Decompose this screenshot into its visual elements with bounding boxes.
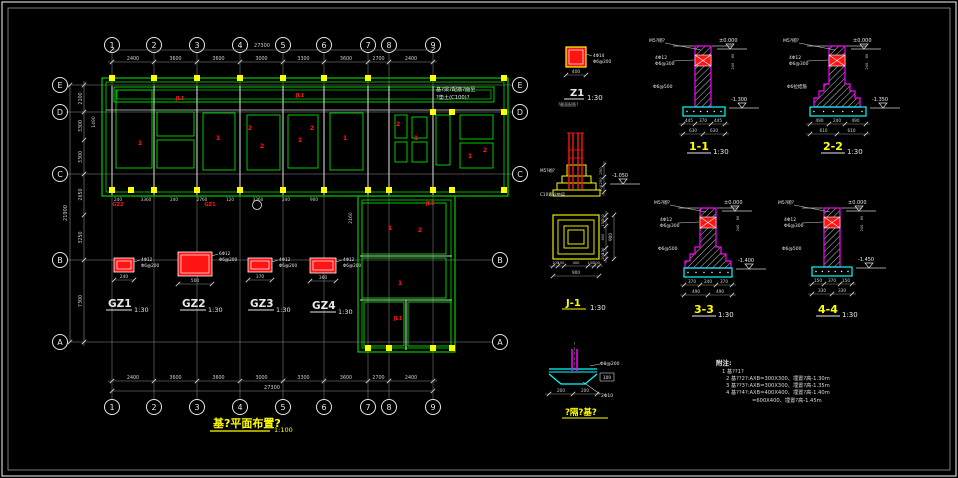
dim-text: 370 <box>688 279 696 284</box>
aggregate-dot <box>861 111 862 112</box>
dim-text: 3360 <box>141 197 152 202</box>
plan-note-line: ?垫土(C100)? <box>436 93 470 101</box>
j1-label: J-1 <box>565 298 581 309</box>
note-item: 4 基??4?:AXB=400X400、埋置?高-1.40m <box>726 388 830 396</box>
trench-detail: Φ8@2001002Φ10200200?隔?基? <box>545 342 620 418</box>
dim-text: 150 <box>601 219 605 227</box>
room-footing-outline <box>364 302 404 346</box>
column-marker <box>280 187 286 193</box>
dim-text: 630 <box>689 128 697 133</box>
beam-section-mark: 1 <box>388 224 393 232</box>
level-triangle <box>731 206 739 211</box>
leader <box>272 260 278 262</box>
j1-scale: 1:30 <box>590 304 606 312</box>
column-marker <box>321 75 327 81</box>
plan-note-line: 基?梁?配筋?面至 <box>436 85 475 93</box>
gz-scale: 1:30 <box>338 308 353 316</box>
aggregate-dot <box>841 271 842 272</box>
beam-section-mark: 2 <box>396 120 401 128</box>
column-marker <box>109 75 115 81</box>
level-value: -1.400 <box>738 258 754 264</box>
plan-title-block: 基?平面布置?1:100 <box>210 416 293 434</box>
leader <box>134 260 140 262</box>
dim-text: 60 <box>731 54 735 58</box>
level-triangle <box>855 206 863 211</box>
beam-section-mark: JL1 <box>393 316 403 322</box>
section-scale: 1:30 <box>713 148 729 156</box>
column-marker <box>109 187 115 193</box>
beam-section-mark: 1 <box>138 139 143 147</box>
dim-text: 200 <box>581 388 589 393</box>
leader <box>678 222 699 223</box>
column-marker <box>237 75 243 81</box>
aggregate-dot <box>686 111 687 112</box>
level-value: ±0.000 <box>848 200 867 206</box>
dim-text: 445 <box>685 118 693 123</box>
note-item: 1 基??1? <box>722 367 744 375</box>
grid-bubble-label: 4 <box>237 403 242 412</box>
column-marker <box>194 187 200 193</box>
beam-section-mark: GZ2 <box>112 202 124 208</box>
section-3-3: ±0.000-1.400370240370490490602404Φ12Φ6@3… <box>654 199 766 319</box>
aggregate-dot <box>727 272 728 273</box>
dim-text: 150 <box>558 261 566 265</box>
grid-bubble-label: 6 <box>321 403 326 412</box>
dim-text: 370 <box>256 274 265 280</box>
rebar-note: 4Φ12 <box>655 55 667 61</box>
rebar-note: 4Φ12 <box>279 257 291 262</box>
column-marker <box>151 187 157 193</box>
j1-column-plan <box>568 230 584 244</box>
rebar-note: 4Φ12 <box>660 217 672 223</box>
j1-detail: M5?砌?C10素砼垫层250250100-1.0501001504001501… <box>540 133 640 312</box>
dim-text: 2760 <box>197 197 208 202</box>
gz-detail-GZ1: 2404Φ12Φ6@200GZ11:30 <box>106 257 159 314</box>
dim-text: 490 <box>692 289 700 294</box>
overall-width-bottom: 27300 <box>264 385 280 391</box>
dim-text: 370 <box>699 118 707 123</box>
grid-bubble-label: A <box>57 338 63 347</box>
column-marker <box>365 187 371 193</box>
leader <box>590 364 600 366</box>
stirrup-note: Φ6@300 <box>660 223 680 229</box>
grid-bubble-label: 2 <box>151 403 156 412</box>
beam-section-mark: 1 <box>414 134 419 142</box>
gz-scale: 1:30 <box>208 306 223 314</box>
aggregate-dot <box>700 111 701 112</box>
note-item: =600X400、埋置?高-1.45m <box>752 396 822 404</box>
dim-text: 400 <box>572 69 581 75</box>
dim-text: 3600 <box>212 56 224 62</box>
plan-title: 基?平面布置? <box>212 416 281 430</box>
dim-text: 3600 <box>212 375 224 381</box>
column-marker <box>430 109 436 115</box>
dim-text: 240 <box>120 274 129 280</box>
tie-note: Φ6@500 <box>658 246 678 252</box>
gz-column-section <box>248 258 272 272</box>
dim-text: 240 <box>170 197 178 202</box>
plan-dimensions: 2400360036003000330036002700240027300240… <box>63 43 437 393</box>
column-marker <box>194 75 200 81</box>
room-footing-outline <box>362 203 446 254</box>
dim-text: 630 <box>710 128 718 133</box>
dim-text: 490 <box>852 118 860 123</box>
level-value: ±0.000 <box>724 200 743 206</box>
level-triangle <box>860 44 868 49</box>
rebar-note: Φ8@200 <box>600 361 620 367</box>
rebar-note: 4Φ12 <box>789 55 801 61</box>
grid-bubble-label: D <box>517 108 523 117</box>
section-scale: 1:30 <box>847 148 863 156</box>
aggregate-dot <box>847 271 848 272</box>
gz-detail-GZ4: 3604Φ12Φ6@200GZ41:30 <box>308 257 362 316</box>
foundation-plan-drawing: 112233445566778899EDCBAEDCBA240036003600… <box>0 0 958 478</box>
section-label: 3-3 <box>694 303 714 316</box>
leader <box>586 54 592 56</box>
room-footing-outline <box>460 115 493 139</box>
dim-text: 490 <box>716 289 724 294</box>
note-item: 2 基??2?:AXB=300X300、埋置?高-1.30m <box>726 374 830 382</box>
grid-bubble-label: 3 <box>194 403 199 412</box>
beam-section-mark: JL1 <box>425 201 435 207</box>
column-marker <box>386 187 392 193</box>
level-value: -1.300 <box>731 97 747 103</box>
aggregate-dot <box>823 111 824 112</box>
level-triangle <box>726 44 734 49</box>
column-marker <box>501 109 507 115</box>
dim-text: 150 <box>842 278 850 283</box>
room-footing-outline <box>412 142 427 162</box>
dim-text: 120 <box>226 197 234 202</box>
dim-text: 3000 <box>255 375 267 381</box>
column-marker <box>449 109 455 115</box>
column-marker <box>151 75 157 81</box>
dim-text: 610 <box>820 128 828 133</box>
tie-note: Φ6拉结筋 <box>787 83 807 90</box>
dim-text: 3600 <box>169 375 181 381</box>
section-label: 1-1 <box>689 140 709 153</box>
trench-profile <box>549 374 597 384</box>
overall-width-top: 27300 <box>254 43 270 49</box>
plan-side-note: 基?梁?配筋?面至?垫土(C100)? <box>436 85 475 101</box>
dim-text: 60 <box>736 216 740 220</box>
stirrup-note: Φ6@200 <box>343 263 361 268</box>
depth-value: 100 <box>603 375 611 380</box>
column-marker <box>128 187 134 193</box>
beam-section-mark: 2 <box>483 146 488 154</box>
tie-note: Φ6@500 <box>653 84 673 90</box>
column-marker <box>449 187 455 193</box>
column-marker <box>321 187 327 193</box>
column-marker <box>237 187 243 193</box>
aggregate-dot <box>815 271 816 272</box>
stirrup-note: Φ6@200 <box>593 59 611 64</box>
gz-detail-GZ2: 5006Φ12Φ6@200GZ21:30 <box>176 251 238 314</box>
grid-bubble-label: B <box>497 256 503 265</box>
gz-label: GZ1 <box>108 298 132 310</box>
grid-bubble-label: 9 <box>430 403 435 412</box>
dim-text: 3600 <box>340 375 352 381</box>
z1-subtext: ?截面配筋? <box>558 101 578 107</box>
grid-bubble-label: 1 <box>109 403 114 412</box>
beam-section-mark: JL1 <box>175 96 185 102</box>
concrete-footing <box>812 267 852 276</box>
aggregate-dot <box>852 111 853 112</box>
aggregate-dot <box>711 272 712 273</box>
aggregate-dot <box>719 272 720 273</box>
concrete-footing <box>683 107 725 116</box>
dim-text: 240 <box>731 63 735 70</box>
stirrup-note: Φ6@300 <box>655 61 675 67</box>
grid-bubble-label: 3 <box>194 41 199 50</box>
room-footing-outline <box>157 140 194 168</box>
aggregate-dot <box>842 111 843 112</box>
pier-step-1 <box>562 176 591 183</box>
pier-note: C10素砼垫层 <box>540 191 565 198</box>
pier-column <box>567 165 586 176</box>
rebar-note: 4Φ12 <box>784 217 796 223</box>
leader <box>212 254 218 256</box>
dim-text: 490 <box>816 118 824 123</box>
outer-border <box>2 2 956 476</box>
pier-step-2 <box>557 183 596 190</box>
wall-note: M5?砌? <box>649 37 666 44</box>
dim-text: 3300 <box>297 56 309 62</box>
dim-text: 330 <box>818 288 826 293</box>
dim-text: 500 <box>191 278 200 284</box>
rooms <box>116 90 493 346</box>
z1-label: Z1 <box>570 88 584 99</box>
plan-columns <box>109 75 507 351</box>
stirrup-note: Φ6@300 <box>784 223 804 229</box>
stirrup-note: Φ6@200 <box>279 263 297 268</box>
pier-note: M5?砌? <box>540 167 555 174</box>
gz-column-section <box>178 252 212 276</box>
leader <box>807 60 828 61</box>
leader <box>336 260 342 262</box>
grid-bubble-label: 8 <box>386 403 391 412</box>
dim-text: 3000 <box>255 56 267 62</box>
grid-bubble-label: 8 <box>386 41 391 50</box>
stirrup-note: Φ6@200 <box>141 263 159 268</box>
level-value: -1.050 <box>612 173 628 179</box>
grid-bubble-label: D <box>57 108 63 117</box>
dim-text: 250 <box>598 167 603 175</box>
dim-text: 370 <box>720 279 728 284</box>
rebar-note: 4Φ12 <box>343 257 355 262</box>
rebar-note: 4Φ12 <box>141 257 153 262</box>
dim-text: 3600 <box>340 56 352 62</box>
level-triangle <box>745 264 753 269</box>
rebar-note: 6Φ12 <box>219 251 231 256</box>
dim-text: 3600 <box>169 56 181 62</box>
dim-text: 900 <box>310 197 318 202</box>
beam-section-mark: JL1 <box>295 93 305 99</box>
dim-text: 240 <box>736 225 740 232</box>
dim-text: 445 <box>714 118 722 123</box>
dim-text: 240 <box>833 118 841 123</box>
dim-text: 2400 <box>127 375 139 381</box>
aggregate-dot <box>687 272 688 273</box>
dim-text: 2400 <box>405 56 417 62</box>
grid-bubble-label: 7 <box>365 403 370 412</box>
beam-section-mark: 2 <box>260 142 265 150</box>
building-outline <box>102 78 508 352</box>
gz-scale: 1:30 <box>134 306 149 314</box>
section-2-2: ±0.000-1.350490240490610610602404Φ12Φ6@3… <box>783 37 900 156</box>
section-4-4: ±0.000-1.450150370150330330602404Φ12Φ6@3… <box>778 199 886 319</box>
room-footing-outline <box>157 112 194 136</box>
dim-text: 400 <box>573 261 581 265</box>
column-marker <box>365 345 371 351</box>
grid-bubble-label: 2 <box>151 41 156 50</box>
dim-text: 3300 <box>78 120 84 132</box>
section-1-1: ±0.000-1.300445370445630630602404Φ12Φ6@3… <box>649 37 759 156</box>
level-value: -1.450 <box>858 257 874 263</box>
wall-partitions <box>106 86 504 350</box>
concrete-footing <box>684 268 732 277</box>
dim-text: 370 <box>828 278 836 283</box>
trench-label: ?隔?基? <box>565 407 597 418</box>
plan-red-marks: JL1JL1JL111221212112121JL1GZ2GZ1 <box>112 93 487 322</box>
note-item: 3 基??3?:AXB=300X300、埋置?高-1.35m <box>726 381 830 389</box>
grid-bubble-label: 6 <box>321 41 326 50</box>
beam-section-mark: 1 <box>398 279 403 287</box>
dim-text: 100 <box>601 252 605 260</box>
section-scale: 1:30 <box>842 311 858 319</box>
dim-text: 150 <box>814 278 822 283</box>
aggregate-dot <box>703 272 704 273</box>
rebar-note: 2Φ10 <box>601 393 613 399</box>
grid-bubble-label: E <box>517 81 522 90</box>
aggregate-dot <box>813 111 814 112</box>
beam-section-mark: 2 <box>418 226 423 234</box>
aggregate-dot <box>695 272 696 273</box>
level-triangle <box>865 263 873 268</box>
grid-bubble-label: B <box>57 256 63 265</box>
grid-bubble-label: 4 <box>237 41 242 50</box>
dim-text: 240 <box>865 63 869 70</box>
cad-canvas: 112233445566778899EDCBAEDCBA240036003600… <box>0 0 958 478</box>
wall-note: M5?砌? <box>783 37 800 44</box>
beam-section-mark: 1 <box>468 152 473 160</box>
column-marker <box>280 75 286 81</box>
dim-text: 2700 <box>372 56 384 62</box>
level-value: ±0.000 <box>853 38 872 44</box>
dim-text: 100 <box>598 184 603 192</box>
grid-bubble-label: 7 <box>365 41 370 50</box>
column-marker <box>501 187 507 193</box>
plan-scale: 1:100 <box>274 426 293 434</box>
dim-text: 200 <box>557 388 565 393</box>
level-triangle <box>738 103 746 108</box>
dim-text: 250 <box>598 177 603 185</box>
plan-micro-dims: 240336024027601203360240900 <box>114 197 318 210</box>
grid-bubble-label: C <box>57 170 63 179</box>
j1-footing-outer <box>553 215 599 259</box>
concrete-footing <box>810 107 866 116</box>
gz-label: GZ2 <box>182 298 206 310</box>
border-frame <box>2 2 956 476</box>
room-footing-outline <box>436 115 450 165</box>
dim-text: 330 <box>838 288 846 293</box>
dim-text: 360 <box>319 275 328 281</box>
leader <box>802 222 823 223</box>
room-footing-outline <box>408 302 451 346</box>
grid-bubble-label: A <box>497 338 503 347</box>
grid-bubble-label: 5 <box>280 403 285 412</box>
gz-detail-GZ3: 3704Φ12Φ6@200GZ31:30 <box>246 257 298 314</box>
z1-scale: 1:30 <box>587 94 603 102</box>
room-footing-outline <box>362 258 446 298</box>
section-label: 2-2 <box>823 140 843 153</box>
column-marker <box>430 187 436 193</box>
column-marker <box>430 75 436 81</box>
level-triangle <box>879 103 887 108</box>
aggregate-dot <box>835 271 836 272</box>
dim-text: 2400 <box>127 56 139 62</box>
dim-text: 60 <box>860 216 864 220</box>
notes-block: 附注:1 基??1?2 基??2?:AXB=300X300、埋置?高-1.30m… <box>716 358 830 404</box>
column-marker <box>449 345 455 351</box>
level-triangle <box>619 179 627 184</box>
dim-text: 2650 <box>78 188 84 200</box>
gz-column-section <box>310 258 336 273</box>
dim-text: 60 <box>865 54 869 58</box>
dim-text: 900 <box>572 270 580 275</box>
dim-text: 100 <box>593 261 601 265</box>
dim-text: 240 <box>860 225 864 232</box>
gz-label: GZ3 <box>250 298 274 310</box>
beam-section-mark: 1 <box>216 134 221 142</box>
stirrup-note: Φ6@300 <box>789 61 809 67</box>
room-footing-outline <box>395 142 407 162</box>
beam-section-mark: 1 <box>298 136 303 144</box>
column-marker <box>365 75 371 81</box>
beam-section-mark: GZ1 <box>204 202 216 208</box>
dim-text: 2160 <box>348 212 354 224</box>
room-footing-outline <box>460 143 493 168</box>
dim-text: 3250 <box>78 231 84 243</box>
column-marker <box>501 75 507 81</box>
dim-text: 900 <box>608 233 613 241</box>
j1-footing-mid <box>558 220 594 254</box>
beam-section-mark: 2 <box>248 124 253 132</box>
notes-title: 附注: <box>716 358 732 367</box>
level-value: ±0.000 <box>719 38 738 44</box>
grid-bubble-label: C <box>517 170 523 179</box>
dim-text: 7300 <box>78 295 84 307</box>
gz-label: GZ4 <box>312 300 336 312</box>
aggregate-dot <box>833 111 834 112</box>
aggregate-dot <box>720 111 721 112</box>
dim-text: 400 <box>601 233 605 241</box>
dim-text: 2700 <box>372 375 384 381</box>
wall-note: M5?砌? <box>654 199 671 206</box>
level-value: -1.350 <box>872 97 888 103</box>
dim-text: 2400 <box>405 375 417 381</box>
dim-text: 3300 <box>297 375 309 381</box>
dim-text: 240 <box>704 279 712 284</box>
dim-text: 1490 <box>91 116 97 128</box>
grid-bubble-label: 5 <box>280 41 285 50</box>
leader <box>673 60 694 61</box>
aggregate-dot <box>828 271 829 272</box>
aggregate-dot <box>714 111 715 112</box>
dim-text: 3300 <box>78 151 84 163</box>
gz-scale: 1:30 <box>276 306 291 314</box>
tie-note: Φ6@500 <box>782 246 802 252</box>
